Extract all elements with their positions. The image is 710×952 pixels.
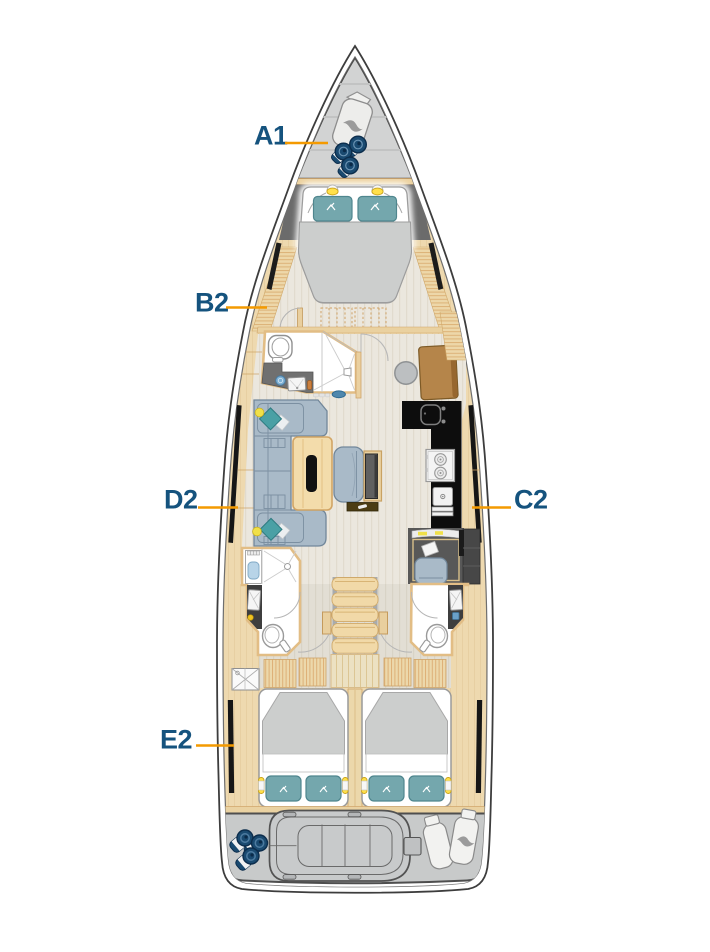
- svg-text:C2: C2: [514, 485, 548, 515]
- svg-text:E2: E2: [160, 725, 192, 755]
- svg-text:A1: A1: [254, 121, 288, 151]
- svg-text:B2: B2: [195, 288, 229, 318]
- svg-text:D2: D2: [164, 485, 198, 515]
